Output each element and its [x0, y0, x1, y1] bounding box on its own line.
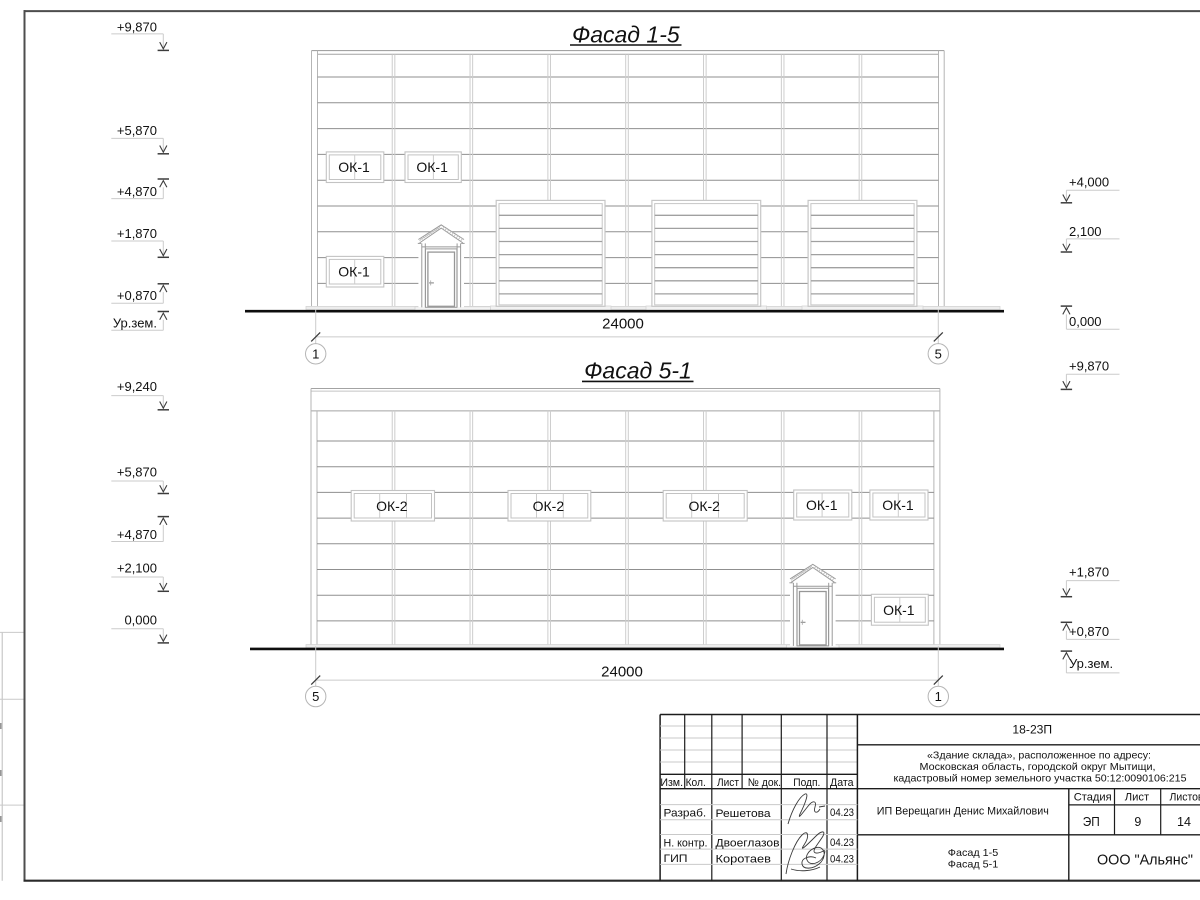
svg-text:Ур.зем.: Ур.зем.: [113, 315, 157, 330]
svg-text:№ док.: № док.: [748, 777, 781, 789]
svg-text:+9,240: +9,240: [117, 379, 157, 394]
svg-text:24000: 24000: [602, 316, 644, 333]
svg-text:«Здание склада», расположенное: «Здание склада», расположенное по адресу…: [927, 749, 1151, 761]
svg-text:+2,100: +2,100: [117, 561, 157, 576]
svg-text:Листов: Листов: [1170, 791, 1200, 803]
svg-text:+1,870: +1,870: [1069, 564, 1109, 579]
svg-text:2,100: 2,100: [1069, 224, 1102, 239]
svg-text:Лист: Лист: [1125, 791, 1149, 803]
svg-text:ОК-2: ОК-2: [688, 498, 720, 514]
svg-text:Кол.: Кол.: [686, 777, 706, 789]
svg-text:ОК-1: ОК-1: [416, 159, 448, 175]
svg-text:ОК-2: ОК-2: [533, 498, 565, 514]
svg-text:ОК-1: ОК-1: [882, 497, 914, 513]
svg-text:Решетова: Решетова: [716, 808, 772, 820]
svg-text:Н. контр.: Н. контр.: [664, 837, 708, 849]
svg-text:+0,870: +0,870: [117, 288, 157, 303]
svg-text:18-23П: 18-23П: [1012, 723, 1052, 737]
svg-text:+4,000: +4,000: [1069, 175, 1109, 190]
svg-text:+4,870: +4,870: [117, 184, 157, 199]
svg-text:ООО "Альянс": ООО "Альянс": [1097, 852, 1193, 868]
svg-text:+9,870: +9,870: [1069, 359, 1109, 374]
svg-text:0,000: 0,000: [1069, 314, 1102, 329]
svg-text:+4,870: +4,870: [117, 527, 157, 542]
svg-text:ОК-1: ОК-1: [883, 602, 915, 618]
svg-text:Фасад 5-1: Фасад 5-1: [948, 858, 999, 870]
svg-text:Лист: Лист: [717, 777, 739, 789]
svg-text:Ур.зем.: Ур.зем.: [1069, 656, 1113, 671]
svg-text:+0,870: +0,870: [1069, 624, 1109, 639]
svg-text:ОК-1: ОК-1: [338, 264, 370, 280]
svg-text:04.23: 04.23: [830, 807, 854, 819]
svg-text:ОК-1: ОК-1: [806, 497, 838, 513]
svg-text:1: 1: [935, 689, 942, 704]
svg-text:Фасад 1-5: Фасад 1-5: [948, 847, 999, 859]
svg-text:Двоеглазов: Двоеглазов: [716, 838, 780, 850]
svg-text:9: 9: [1134, 815, 1141, 829]
svg-text:Стадия: Стадия: [1074, 791, 1112, 803]
svg-text:24000: 24000: [601, 663, 643, 680]
svg-text:1: 1: [312, 346, 319, 361]
svg-text:кадастровый номер земельного у: кадастровый номер земельного участка 50:…: [894, 772, 1187, 784]
svg-text:Фасад 5-1: Фасад 5-1: [584, 358, 692, 384]
svg-text:14: 14: [1177, 815, 1191, 829]
svg-text:5: 5: [935, 346, 942, 361]
svg-text:Московская область, городской: Московская область, городской округ Мыти…: [920, 761, 1156, 773]
svg-text:Коротаев: Коротаев: [716, 853, 772, 865]
svg-text:Изм.: Изм.: [660, 777, 683, 789]
svg-text:ИП Верещагин Денис Михайлович: ИП Верещагин Денис Михайлович: [877, 806, 1049, 818]
svg-text:ЭП: ЭП: [1083, 815, 1100, 829]
svg-text:04.23: 04.23: [830, 837, 854, 849]
svg-text:+5,870: +5,870: [117, 123, 157, 138]
svg-text:04.23: 04.23: [830, 854, 854, 866]
svg-text:+1,870: +1,870: [117, 226, 157, 241]
svg-text:+5,870: +5,870: [117, 465, 157, 480]
svg-text:5: 5: [312, 689, 319, 704]
svg-text:Дата: Дата: [830, 777, 854, 789]
svg-text:+9,870: +9,870: [117, 20, 157, 35]
svg-text:ОК-2: ОК-2: [376, 498, 408, 514]
svg-text:ОК-1: ОК-1: [338, 159, 370, 175]
svg-text:Разраб.: Разраб.: [664, 808, 707, 820]
svg-text:ГИП: ГИП: [664, 853, 688, 865]
svg-text:0,000: 0,000: [124, 613, 157, 628]
svg-text:Фасад 1-5: Фасад 1-5: [572, 21, 680, 47]
svg-text:Подп.: Подп.: [793, 777, 820, 789]
